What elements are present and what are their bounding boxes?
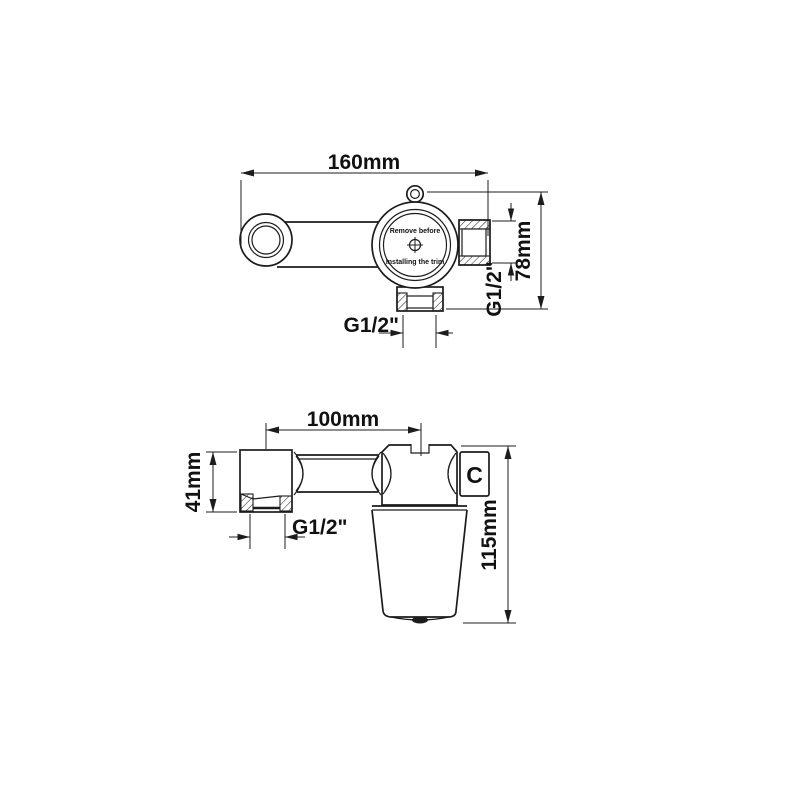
front-view-top-lug: [407, 186, 423, 202]
technical-drawing-page: Remove before Installing the trim 160mm …: [0, 0, 800, 800]
dim-height-78-label: 78mm: [512, 221, 535, 282]
dim-block-height-41: 41mm: [182, 452, 237, 513]
side-view-end-block: [240, 450, 292, 512]
side-view: C 100mm 41mm: [182, 408, 516, 624]
dim-total-height-115-label: 115mm: [478, 499, 501, 570]
valve-technical-drawing: Remove before Installing the trim 160mm …: [0, 0, 800, 800]
dim-width-160-label: 160mm: [328, 151, 400, 174]
cap-note-line2: Installing the trim: [386, 259, 444, 266]
dim-bottom-port-thread: G1/2": [344, 314, 453, 348]
dim-center-distance-100-label: 100mm: [307, 408, 379, 431]
side-view-main-body: [382, 444, 457, 505]
cold-marker-label: C: [466, 462, 483, 488]
front-view-main-body: Remove before Installing the trim: [372, 202, 458, 288]
side-view-arm: [294, 452, 381, 495]
front-view: Remove before Installing the trim 160mm …: [240, 151, 548, 348]
dim-inlet-thread: G1/2": [229, 514, 347, 549]
dim-bottom-port-thread-label: G1/2": [344, 314, 399, 337]
side-view-cone-cap: [372, 506, 467, 624]
front-view-bottom-port: [397, 287, 443, 311]
front-view-side-port: [459, 220, 490, 265]
dim-block-height-41-label: 41mm: [182, 452, 205, 513]
dim-inlet-thread-label: G1/2": [292, 516, 347, 539]
cone-bottom-nub: [412, 617, 428, 624]
dim-side-port-thread-label: G1/2": [483, 261, 506, 316]
front-view-left-flange: [240, 214, 292, 266]
cap-note-line1: Remove before: [390, 228, 441, 235]
side-view-cold-marker: C: [460, 452, 489, 496]
